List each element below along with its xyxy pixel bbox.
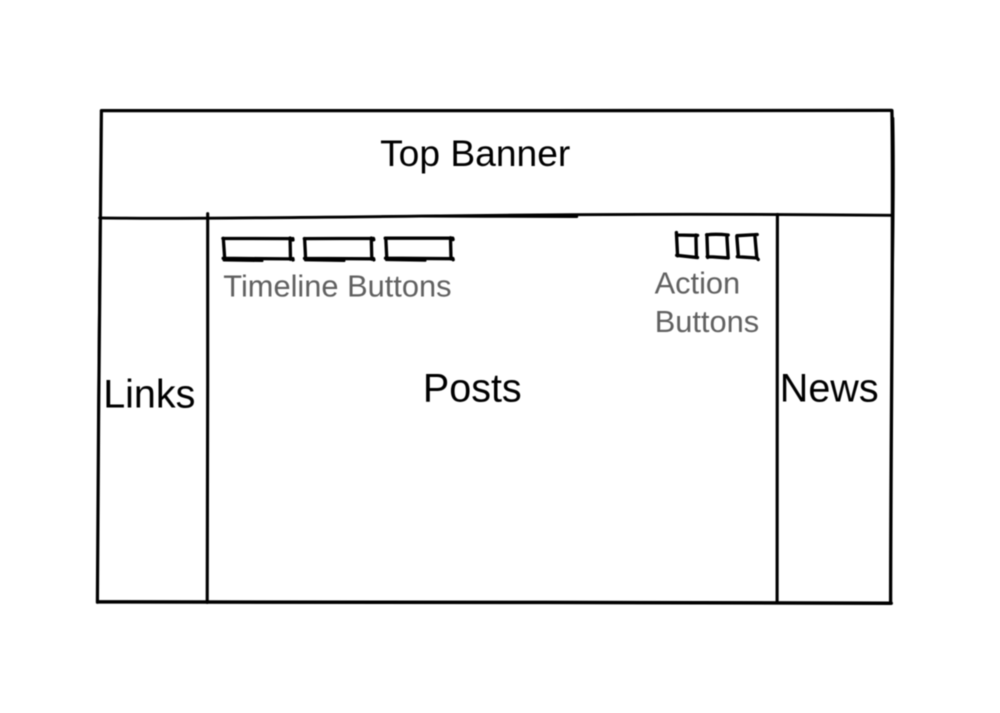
svg-text:Links: Links bbox=[103, 372, 195, 416]
svg-text:Posts: Posts bbox=[423, 367, 522, 411]
svg-text:Top Banner: Top Banner bbox=[380, 132, 570, 174]
svg-text:Buttons: Buttons bbox=[655, 304, 759, 339]
svg-text:Action: Action bbox=[655, 265, 741, 300]
svg-text:Timeline Buttons: Timeline Buttons bbox=[223, 269, 451, 304]
svg-text:News: News bbox=[780, 366, 879, 410]
